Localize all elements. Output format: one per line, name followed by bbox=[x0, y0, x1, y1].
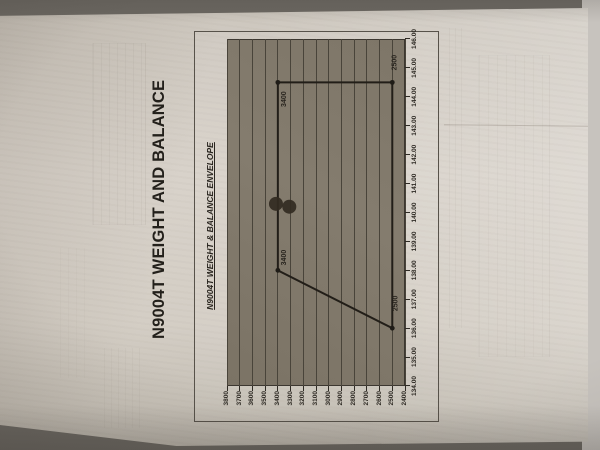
envelope-corner-label: 3400 bbox=[281, 250, 288, 266]
photo-frame: N9004T WEIGHT AND BALANCE N9004T WEIGHT … bbox=[0, 0, 600, 450]
bleedthrough-ghost bbox=[104, 348, 140, 428]
bleedthrough-ghost bbox=[449, 28, 467, 328]
paper-sheet: N9004T WEIGHT AND BALANCE N9004T WEIGHT … bbox=[0, 8, 588, 446]
envelope-corner-label: 2500 bbox=[392, 295, 399, 311]
envelope-svg: 3400340025002500 bbox=[150, 29, 442, 423]
pen-mark bbox=[269, 197, 283, 211]
envelope-corner-label: 3400 bbox=[281, 91, 288, 107]
paper-crease bbox=[444, 124, 594, 127]
bleedthrough-ghost bbox=[478, 55, 550, 357]
bleedthrough-ghost bbox=[92, 43, 146, 225]
document: N9004T WEIGHT AND BALANCE N9004T WEIGHT … bbox=[150, 29, 442, 423]
bleedthrough-ghost bbox=[60, 248, 86, 378]
pen-mark bbox=[282, 200, 296, 214]
envelope-corner-label: 2500 bbox=[391, 55, 398, 71]
envelope-corner-marker bbox=[275, 80, 280, 85]
envelope-corner-marker bbox=[390, 326, 395, 331]
envelope-corner-marker bbox=[390, 80, 395, 85]
envelope-corner-marker bbox=[275, 268, 280, 273]
